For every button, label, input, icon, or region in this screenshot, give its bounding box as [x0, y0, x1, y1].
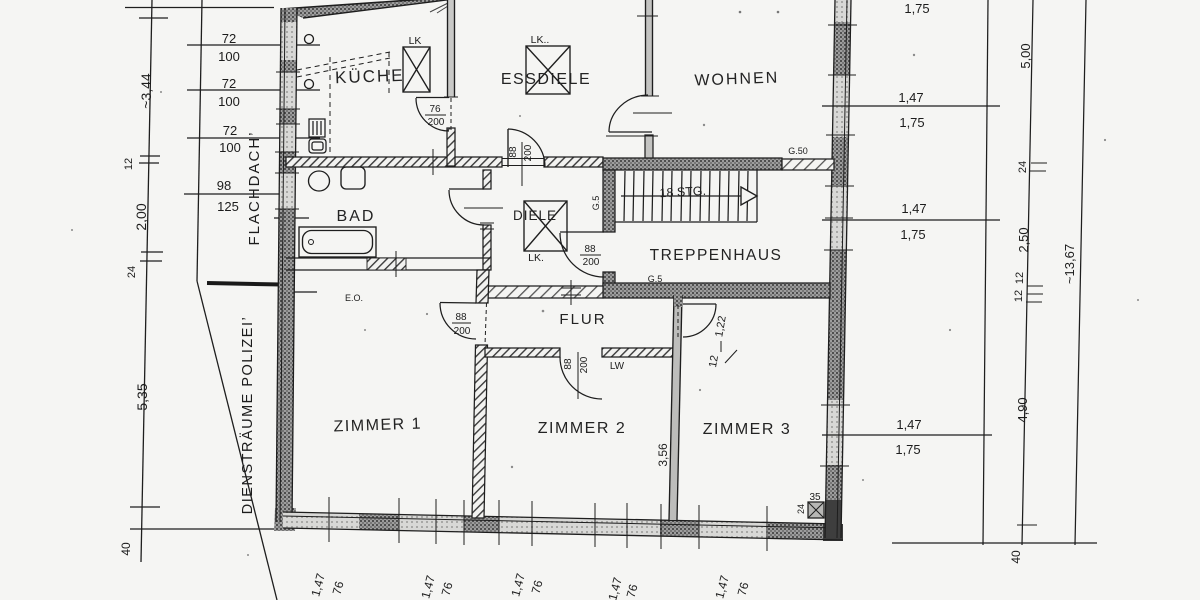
svg-text:18 STG.: 18 STG. — [659, 184, 706, 200]
svg-text:1,75: 1,75 — [895, 442, 920, 457]
svg-text:24: 24 — [1017, 161, 1029, 173]
svg-text:4,90: 4,90 — [1015, 397, 1030, 422]
svg-text:2,00: 2,00 — [133, 203, 149, 230]
svg-text:12: 12 — [123, 158, 135, 170]
svg-text:40: 40 — [119, 542, 133, 556]
svg-text:KÜCHE: KÜCHE — [335, 66, 405, 87]
svg-text:12: 12 — [707, 354, 721, 368]
svg-text:200: 200 — [523, 144, 534, 161]
svg-text:200: 200 — [454, 326, 471, 337]
svg-text:ZIMMER 2: ZIMMER 2 — [538, 420, 626, 437]
svg-text:200: 200 — [583, 257, 600, 268]
svg-text:FLUR: FLUR — [559, 311, 606, 328]
svg-text:35: 35 — [809, 492, 821, 503]
svg-text:2,50: 2,50 — [1016, 227, 1031, 252]
svg-text:100: 100 — [219, 140, 241, 155]
svg-text:LK: LK — [409, 35, 422, 47]
svg-text:100: 100 — [218, 49, 240, 64]
svg-text:ESSDIELE: ESSDIELE — [501, 71, 591, 88]
svg-text:125: 125 — [217, 199, 239, 214]
svg-text:88: 88 — [455, 312, 467, 323]
svg-text:24: 24 — [126, 266, 138, 278]
svg-text:FLACHDACH’: FLACHDACH’ — [246, 130, 263, 245]
svg-text:G.5: G.5 — [591, 196, 601, 211]
svg-text:3,56: 3,56 — [656, 443, 670, 467]
svg-text:LW: LW — [610, 361, 625, 372]
svg-text:~13,67: ~13,67 — [1062, 244, 1077, 284]
svg-text:88: 88 — [508, 146, 519, 158]
svg-text:E.O.: E.O. — [345, 293, 363, 303]
svg-text:88: 88 — [584, 244, 596, 255]
svg-text:200: 200 — [428, 117, 445, 128]
svg-text:1,75: 1,75 — [900, 227, 925, 242]
svg-text:1,47: 1,47 — [901, 201, 926, 216]
svg-text:5,35: 5,35 — [134, 383, 150, 410]
svg-text:100: 100 — [218, 94, 240, 109]
svg-text:72: 72 — [223, 123, 237, 138]
svg-text:40: 40 — [1009, 550, 1023, 564]
svg-text:G.50: G.50 — [788, 146, 808, 156]
svg-text:DIENSTRÄUME POLIZEI’: DIENSTRÄUME POLIZEI’ — [239, 316, 256, 514]
svg-text:72: 72 — [222, 31, 236, 46]
svg-text:ZIMMER 1: ZIMMER 1 — [333, 415, 422, 435]
svg-text:12: 12 — [1013, 290, 1025, 302]
svg-text:1,75: 1,75 — [904, 1, 929, 16]
svg-text:1,75: 1,75 — [899, 115, 924, 130]
svg-text:G.5: G.5 — [648, 274, 663, 284]
svg-text:76: 76 — [429, 104, 441, 115]
svg-text:BAD: BAD — [337, 208, 376, 225]
svg-text:98: 98 — [217, 178, 231, 193]
svg-text:72: 72 — [222, 76, 236, 91]
svg-text:ZIMMER 3: ZIMMER 3 — [703, 421, 791, 438]
svg-text:DIELE: DIELE — [513, 208, 557, 223]
svg-text:5,00: 5,00 — [1018, 43, 1033, 68]
svg-text:12: 12 — [1014, 272, 1026, 284]
svg-text:1,47: 1,47 — [896, 417, 921, 432]
svg-text:LK.: LK. — [528, 252, 544, 264]
svg-text:TREPPENHAUS: TREPPENHAUS — [650, 247, 783, 264]
svg-text:~3,44: ~3,44 — [138, 73, 154, 109]
svg-text:88: 88 — [563, 358, 574, 370]
svg-text:1,47: 1,47 — [898, 90, 923, 105]
svg-text:WOHNEN: WOHNEN — [694, 70, 779, 90]
svg-text:200: 200 — [579, 356, 590, 373]
svg-text:24: 24 — [796, 504, 806, 514]
svg-text:LK..: LK.. — [531, 34, 550, 46]
